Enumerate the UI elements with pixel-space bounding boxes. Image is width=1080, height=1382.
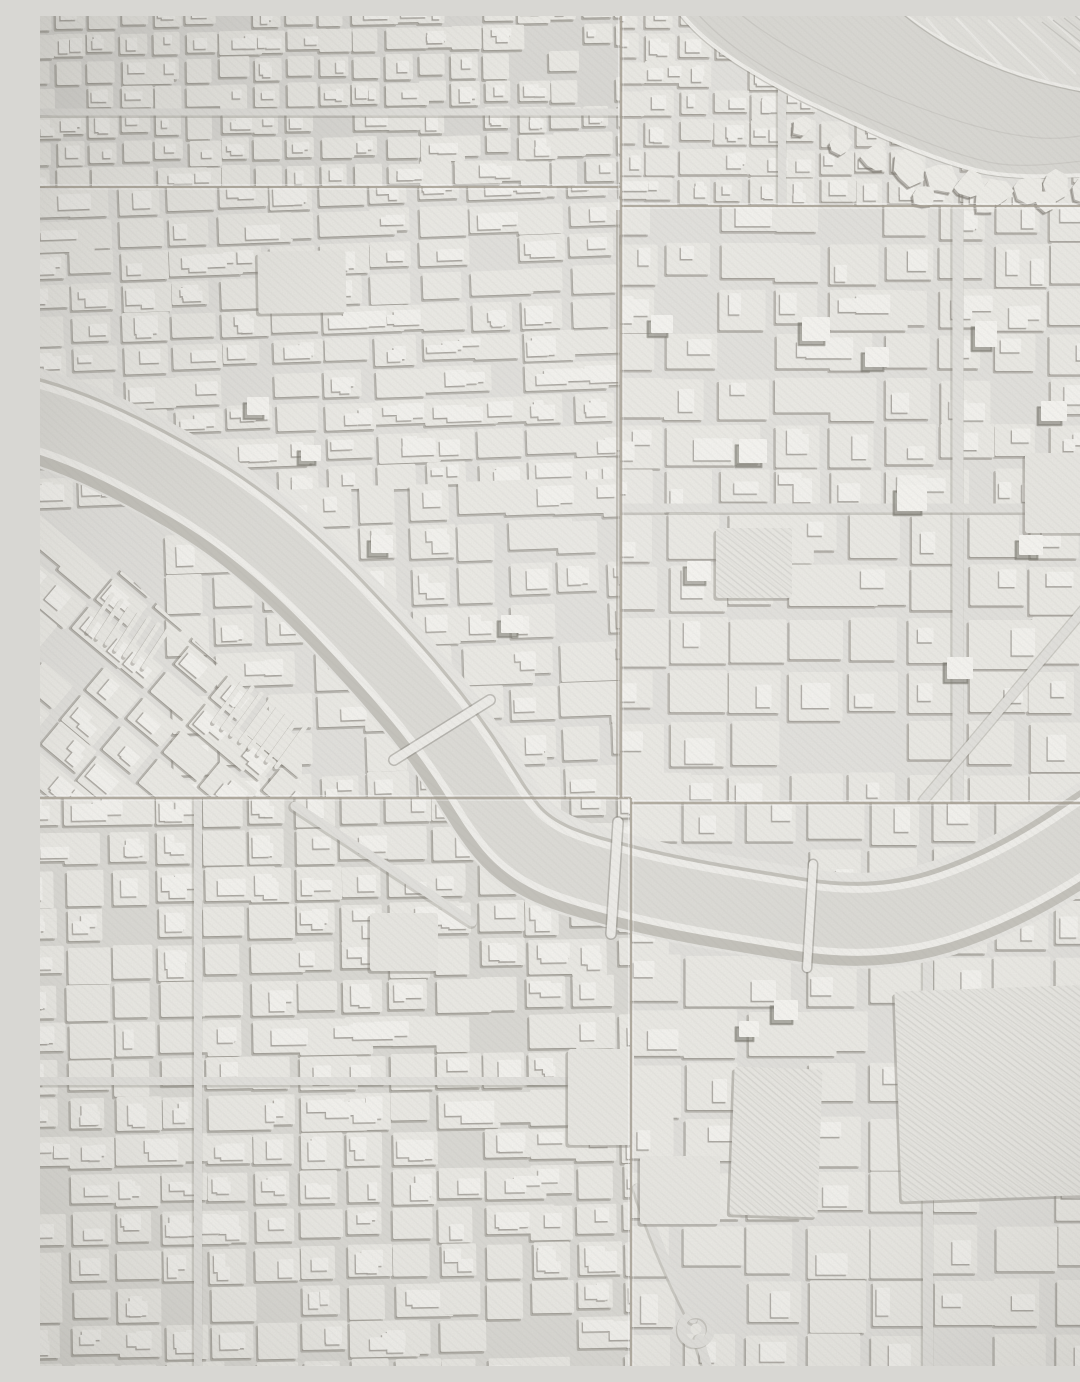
photo-3d-printed-city-map	[40, 16, 1080, 1366]
map-render	[40, 16, 1080, 1366]
map-render-container	[40, 16, 1080, 1366]
corner-shading	[40, 16, 1080, 1366]
